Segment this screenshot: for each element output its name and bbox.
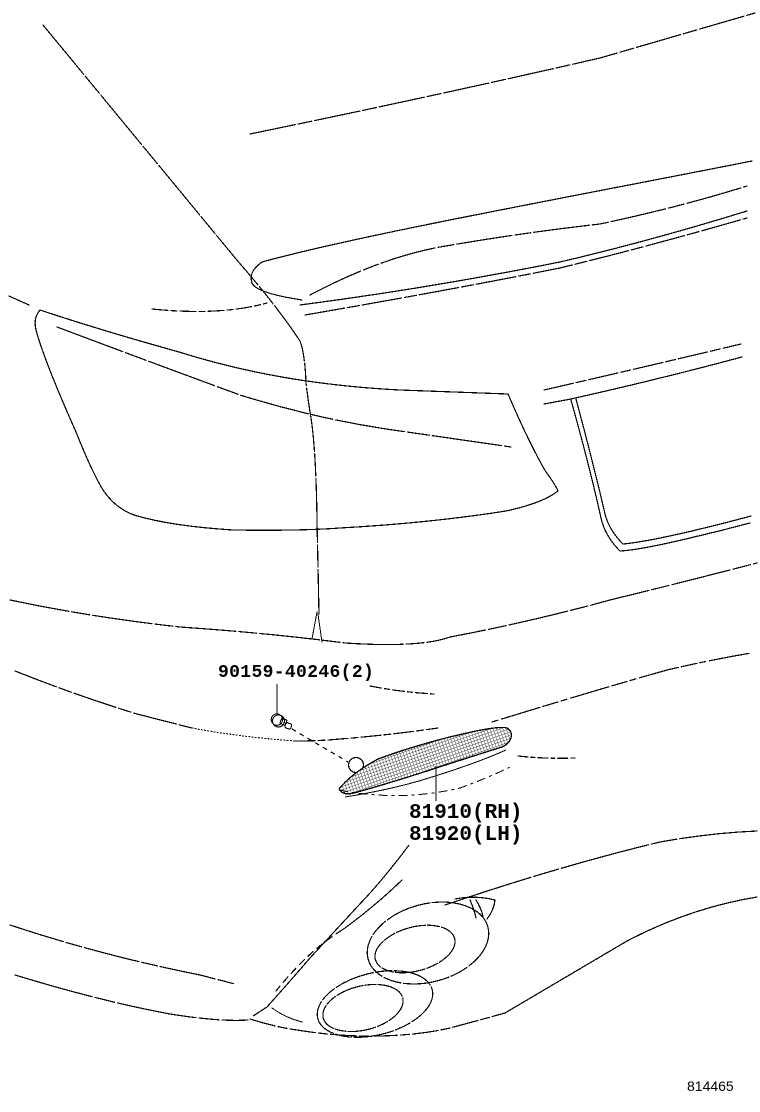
svg-text:90159-40246(2): 90159-40246(2) (218, 663, 374, 683)
svg-text:81910(RH): 81910(RH) (409, 802, 522, 825)
svg-text:81920(LH): 81920(LH) (409, 824, 522, 847)
svg-text:814465: 814465 (687, 1078, 734, 1094)
